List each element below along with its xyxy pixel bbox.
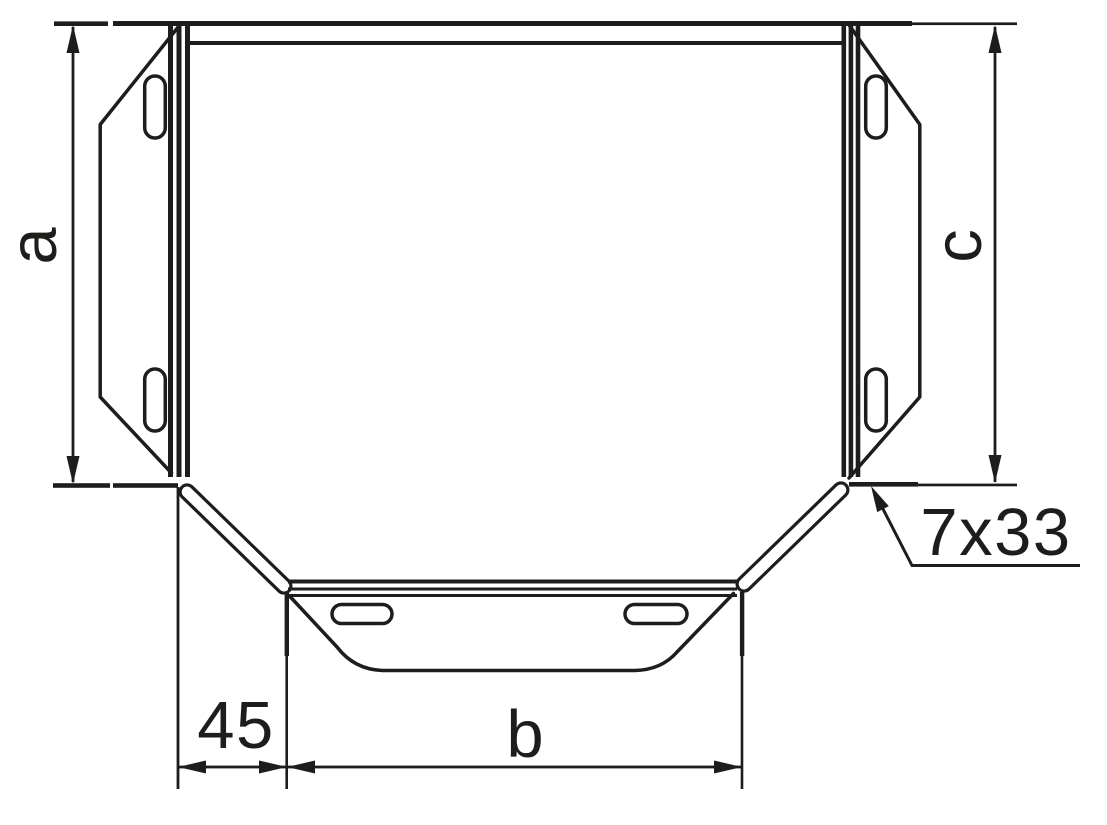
run-bottom-edges [113,482,918,488]
dim-a-arrow-down [67,456,80,484]
dim-b-arrow-right [714,761,742,774]
dim-a-line [72,27,75,482]
dim-b-label: b [506,697,543,772]
right-rail-line-2 [849,24,854,477]
dim-c-arrow-down [989,455,1002,483]
dim-b-extension-right [741,656,744,789]
right-chamfer-strip [734,480,851,594]
chamfer-strips [177,480,851,596]
bottom-plate-slot-left [332,605,392,624]
bottom-branch-left-edge [285,592,289,656]
dim-45-label: 45 [197,688,275,763]
right-branch-rail [842,24,861,477]
dim-c-extension-bottom [918,484,1017,487]
top-inner-edge [186,41,846,45]
dim-a-label: a [0,227,71,265]
callout-leader-line [883,509,912,566]
bottom-edge-left [113,483,178,488]
left-rail-line-3 [185,24,190,477]
dim-45-extension-left [177,487,180,789]
callout-leader-arrow [871,486,889,512]
left-plate-slot-top [145,76,166,138]
dim-b-arrow-left [287,761,315,774]
left-branch-rail [168,24,190,477]
dim-a-extension-top [54,21,108,26]
bottom-fold-line-2 [288,588,737,591]
top-outer-edge [113,21,912,26]
dimension-45-and-b: 45 b [177,487,744,789]
bottom-branch-end [285,580,745,671]
bottom-plate-slot-right [625,605,687,624]
bottom-branch-right-edge [740,592,744,656]
left-rail-line-1 [168,24,173,477]
left-plate-slot-bottom [145,369,166,431]
right-rail-line-1 [842,24,847,477]
technical-drawing-canvas: a c 45 b 7x33 [0,0,1107,825]
dim-a-extension-bottom [53,483,110,488]
dim-c-extension-top [912,22,1017,25]
bottom-fold-line-3 [288,594,737,597]
bottom-edge-right [849,482,918,487]
dimension-c: c [912,22,1017,486]
bottom-fold-line-1 [288,580,737,584]
dim-a-arrow-up [67,25,80,53]
tee-piece-drawing: a c 45 b 7x33 [0,0,1107,825]
dimension-a: a [0,21,110,487]
right-rail-line-3 [856,24,861,477]
right-plate-slot-bottom [866,369,887,431]
callout-7x33: 7x33 [871,486,1080,570]
dim-c-arrow-up [989,25,1002,53]
left-chamfer-strip [177,482,294,596]
tray-top-run [113,21,912,45]
left-rail-line-2 [177,24,182,477]
callout-label: 7x33 [920,495,1071,570]
dim-45-b-extension-middle [285,656,288,789]
dim-c-label: c [921,229,996,263]
right-plate-slot-top [866,76,887,138]
